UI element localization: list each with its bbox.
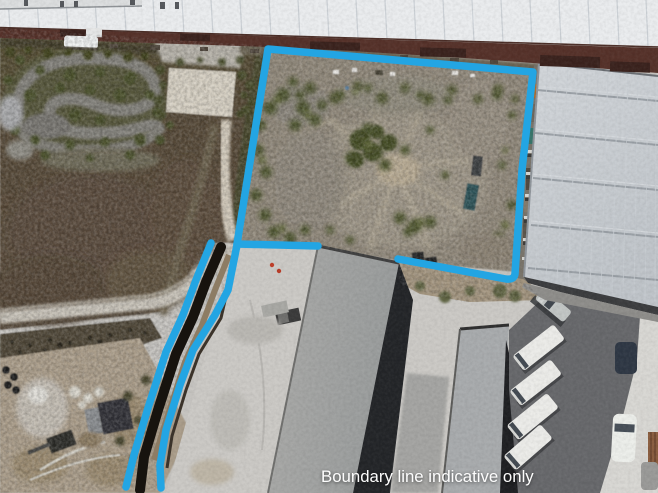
svg-text:Boundary line indicative only: Boundary line indicative only: [321, 467, 534, 486]
